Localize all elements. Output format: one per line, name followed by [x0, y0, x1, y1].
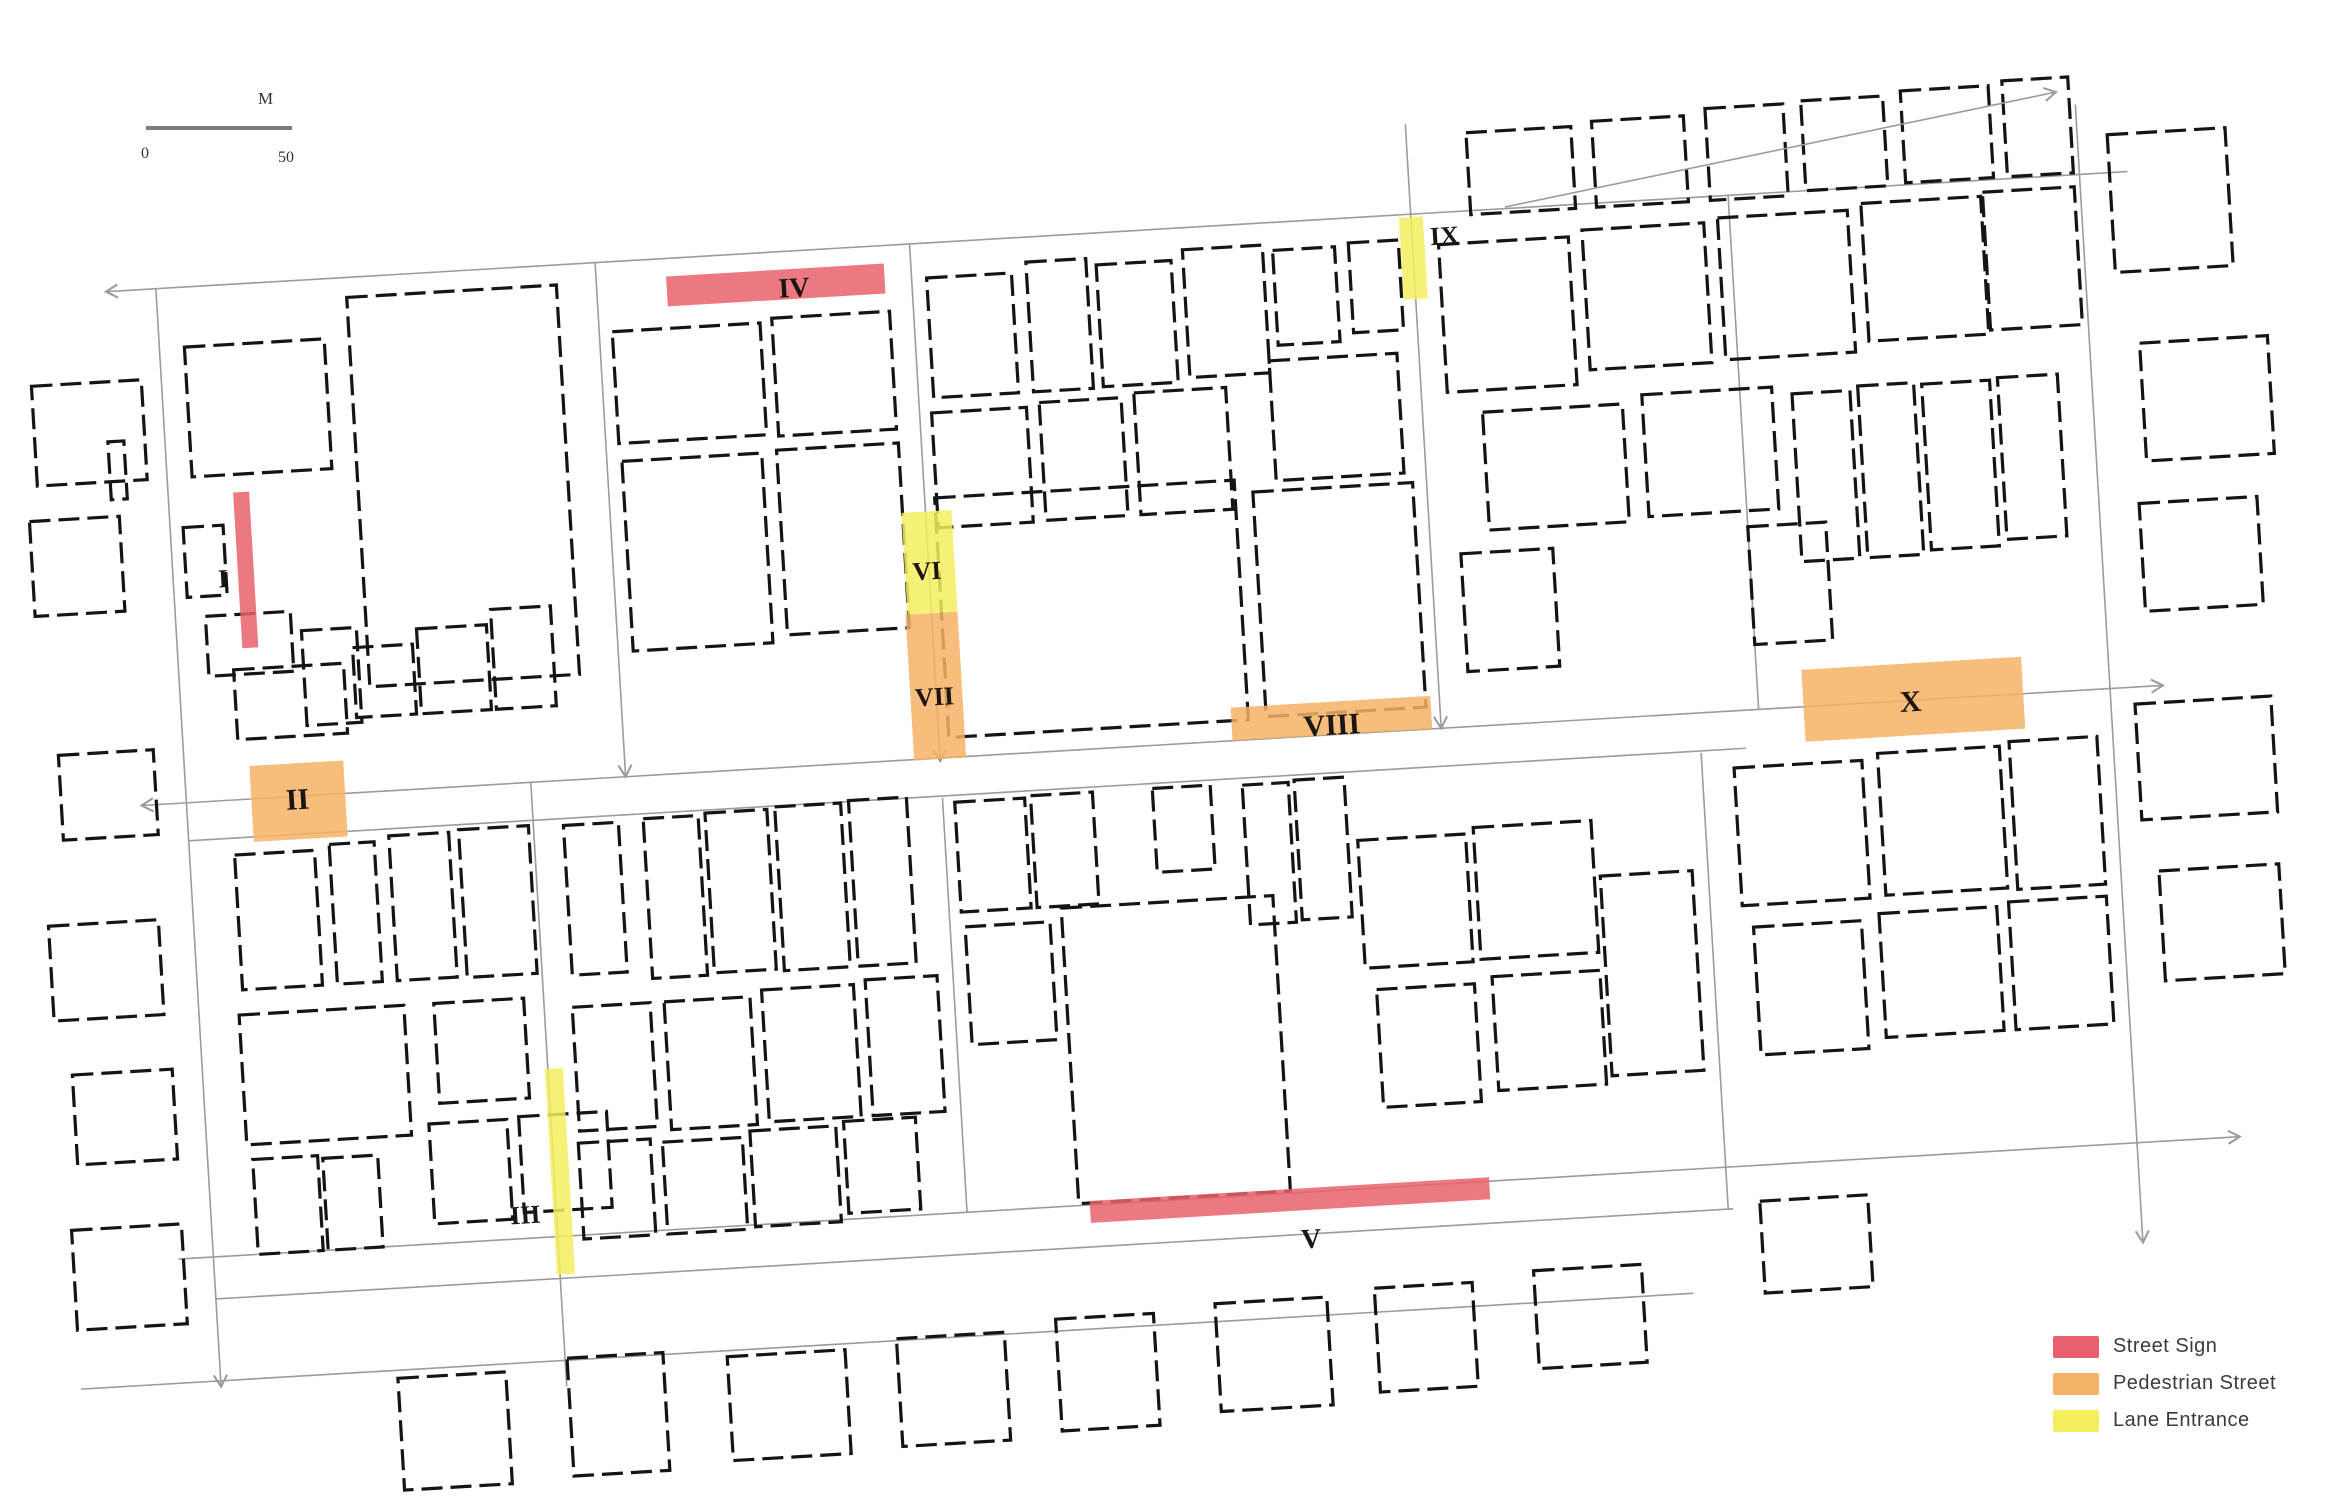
building-footprint: [72, 1224, 188, 1330]
legend-swatch-lane-entrance: [2053, 1410, 2099, 1432]
street-line: [1728, 195, 1759, 709]
building-footprint: [777, 443, 910, 635]
legend-label-lane-entrance: Lane Entrance: [2113, 1409, 2250, 1432]
building-footprint: [48, 920, 163, 1021]
building-footprint: [490, 606, 556, 709]
building-footprint: [434, 998, 530, 1103]
zone-label-ii: II: [285, 783, 310, 817]
building-footprint: [253, 1156, 324, 1255]
building-footprint: [563, 822, 627, 975]
legend-item-pedestrian-street: Pedestrian Street: [2053, 1372, 2276, 1395]
zone-label-vii: VII: [914, 681, 955, 712]
building-footprint: [184, 339, 331, 477]
building-footprint: [643, 816, 707, 979]
zone-label-x: X: [1899, 685, 1923, 719]
legend-item-street-sign: Street Sign: [2053, 1335, 2276, 1358]
legend-swatch-street-sign: [2053, 1336, 2099, 1358]
building-footprint: [2009, 736, 2106, 889]
building-footprint: [762, 985, 862, 1122]
legend-label-pedestrian-street: Pedestrian Street: [2113, 1372, 2276, 1395]
building-footprint: [1591, 116, 1688, 207]
building-footprint: [1026, 259, 1094, 392]
building-footprint: [1492, 970, 1607, 1090]
building-footprint: [239, 1005, 411, 1145]
zone-area-i: [233, 492, 258, 649]
building-footprint: [1242, 782, 1296, 924]
overlay-street-lines: [1505, 92, 2056, 207]
building-footprint: [1096, 260, 1178, 386]
building-footprint: [2139, 497, 2263, 612]
building-footprint: [458, 826, 537, 978]
legend-swatch-pedestrian-street: [2053, 1373, 2099, 1395]
zone-area-iv: [666, 264, 885, 307]
zone-label-viii: VIII: [1303, 707, 1362, 743]
building-footprint: [301, 627, 362, 725]
zone-label-ix: IX: [1429, 220, 1460, 251]
building-footprint: [848, 797, 916, 966]
building-footprint: [896, 1332, 1010, 1446]
site-map: IIIIIIIVVVIVIIVIIIIXX M 0 50: [0, 0, 2326, 1510]
building-footprint: [1734, 760, 1870, 905]
legend-item-lane-entrance: Lane Entrance: [2053, 1409, 2276, 1432]
building-footprint: [1473, 821, 1599, 960]
building-footprint: [932, 407, 1034, 527]
building-footprint: [664, 997, 757, 1130]
building-footprint: [1922, 380, 2000, 550]
building-footprint: [1861, 196, 1989, 341]
building-footprint: [1253, 483, 1426, 717]
building-footprint: [389, 832, 457, 980]
building-footprint: [1134, 387, 1233, 514]
building-footprint: [1374, 1282, 1478, 1392]
building-footprint: [2159, 864, 2285, 981]
building-footprint: [235, 850, 323, 990]
building-footprint: [1717, 210, 1855, 359]
building-footprint: [1461, 548, 1560, 671]
building-footprint: [1483, 404, 1630, 530]
building-footprint: [1439, 237, 1578, 392]
street-line: [156, 289, 221, 1387]
building-footprint: [1760, 1195, 1873, 1293]
building-footprint: [1466, 127, 1576, 215]
building-footprint: [1182, 245, 1269, 378]
street-line: [81, 1293, 1693, 1389]
zone-label-vi: VI: [912, 556, 943, 587]
building-footprint: [772, 311, 897, 436]
building-footprint: [108, 441, 127, 500]
building-footprint: [622, 453, 773, 651]
figure-canvas: IIIIIIIVVVIVIIVIIIIXX M 0 50 Street Sign…: [0, 0, 2326, 1510]
street-line: [595, 263, 626, 777]
legend-label-street-sign: Street Sign: [2113, 1335, 2217, 1358]
building-footprint: [31, 380, 147, 486]
building-footprint: [612, 323, 766, 444]
building-footprint: [1534, 1264, 1648, 1368]
building-footprint: [1294, 777, 1352, 920]
scale-bar-zero: 0: [141, 145, 149, 162]
building-footprint: [1030, 792, 1099, 907]
building-footprint: [705, 809, 776, 972]
building-footprint: [1748, 522, 1833, 644]
building-footprint: [865, 976, 945, 1116]
building-footprint: [29, 516, 124, 616]
scale-bar: M 0 50: [141, 89, 294, 166]
street-line: [2075, 105, 2143, 1243]
building-footprint: [662, 1137, 747, 1234]
building-footprint: [567, 1353, 670, 1476]
building-footprint: [1642, 387, 1779, 516]
scale-bar-unit: M: [258, 89, 273, 108]
building-footprint: [1754, 921, 1869, 1055]
building-footprint: [1215, 1297, 1333, 1411]
building-footprint: [1269, 353, 1404, 480]
building-footprint: [1600, 871, 1704, 1076]
building-footprint: [1877, 746, 2007, 895]
zone-label-iv: IV: [778, 272, 811, 305]
building-footprint: [1061, 896, 1290, 1204]
street-line: [942, 798, 967, 1212]
building-footprint: [2135, 696, 2278, 820]
building-footprint: [2107, 128, 2233, 273]
building-footprint: [1705, 104, 1788, 200]
zone-area-iii: [545, 1068, 575, 1275]
building-footprint: [58, 750, 158, 840]
building-footprint: [1039, 398, 1128, 521]
building-footprint: [578, 1139, 656, 1239]
zone-label-v: V: [1300, 1223, 1322, 1255]
zone-label-i: I: [217, 564, 229, 594]
building-footprints: [5, 66, 2326, 1509]
street-line-diagonal: [1505, 92, 2056, 207]
building-footprint: [429, 1119, 513, 1223]
building-footprint: [1582, 223, 1712, 370]
building-footprint: [2002, 77, 2074, 177]
zone-label-iii: III: [509, 1200, 541, 1231]
building-footprint: [955, 798, 1031, 912]
legend: Street SignPedestrian StreetLane Entranc…: [2053, 1335, 2276, 1432]
scale-bar-max: 50: [278, 149, 294, 166]
building-footprint: [1273, 247, 1341, 346]
building-footprint: [417, 625, 492, 714]
building-footprint: [1982, 187, 2082, 330]
building-footprint: [2009, 896, 2114, 1030]
building-footprint: [329, 842, 382, 984]
building-footprint: [775, 803, 851, 971]
street-line: [189, 748, 1746, 841]
building-footprint: [965, 922, 1057, 1045]
building-footprint: [1997, 374, 2067, 539]
building-footprint: [2140, 336, 2275, 461]
building-footprint: [72, 1069, 177, 1165]
building-footprint: [1858, 383, 1924, 558]
building-footprint: [323, 1155, 383, 1250]
building-footprint: [1879, 907, 2004, 1038]
building-footprint: [398, 1372, 512, 1490]
building-footprint: [843, 1117, 920, 1213]
building-footprint: [1348, 240, 1403, 333]
building-footprint: [927, 273, 1019, 398]
street-line: [1701, 753, 1728, 1209]
building-footprint: [727, 1350, 851, 1461]
street-line: [1405, 124, 1441, 728]
survey-zones: [221, 183, 2052, 1291]
building-footprint: [750, 1126, 842, 1227]
zone-area-ix: [1399, 216, 1428, 299]
building-footprint: [1358, 834, 1473, 968]
building-footprint: [1152, 785, 1215, 872]
building-footprint: [1900, 86, 1993, 183]
building-footprint: [1377, 984, 1482, 1108]
rotated-map-group: IIIIIIIVVVIVIIVIIIIXX: [5, 66, 2326, 1509]
